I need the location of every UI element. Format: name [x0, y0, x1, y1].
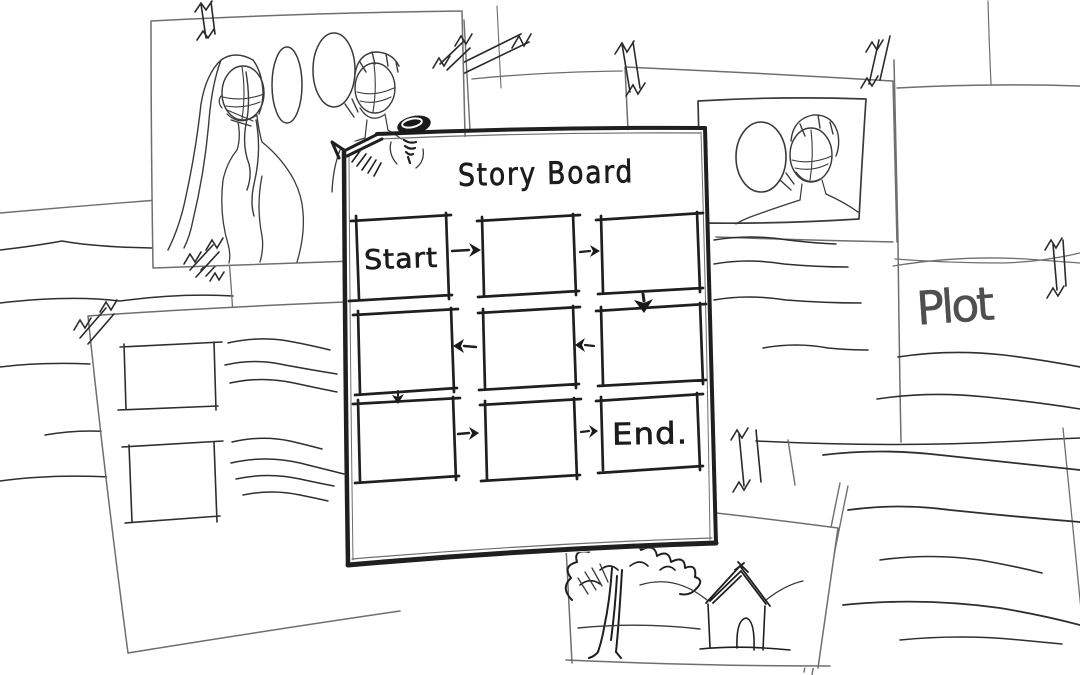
end-label: End. — [612, 416, 689, 452]
arrow-shaft — [585, 345, 594, 346]
start-label: Start — [364, 243, 439, 277]
arrow-shaft — [458, 433, 469, 434]
panel-sheet — [341, 127, 716, 566]
storyboard-title: Story Board — [458, 154, 635, 194]
plot-label: Plot — [915, 276, 1001, 336]
storyboard-panel: Story Board Start End. — [332, 113, 716, 566]
arrow-shaft — [580, 251, 590, 252]
arrow-shaft — [643, 294, 644, 301]
arrow-shaft — [464, 346, 476, 347]
arrow-shaft — [452, 250, 469, 251]
sketch-canvas: Plot — [0, 0, 1080, 675]
arrow-shaft — [581, 431, 589, 432]
